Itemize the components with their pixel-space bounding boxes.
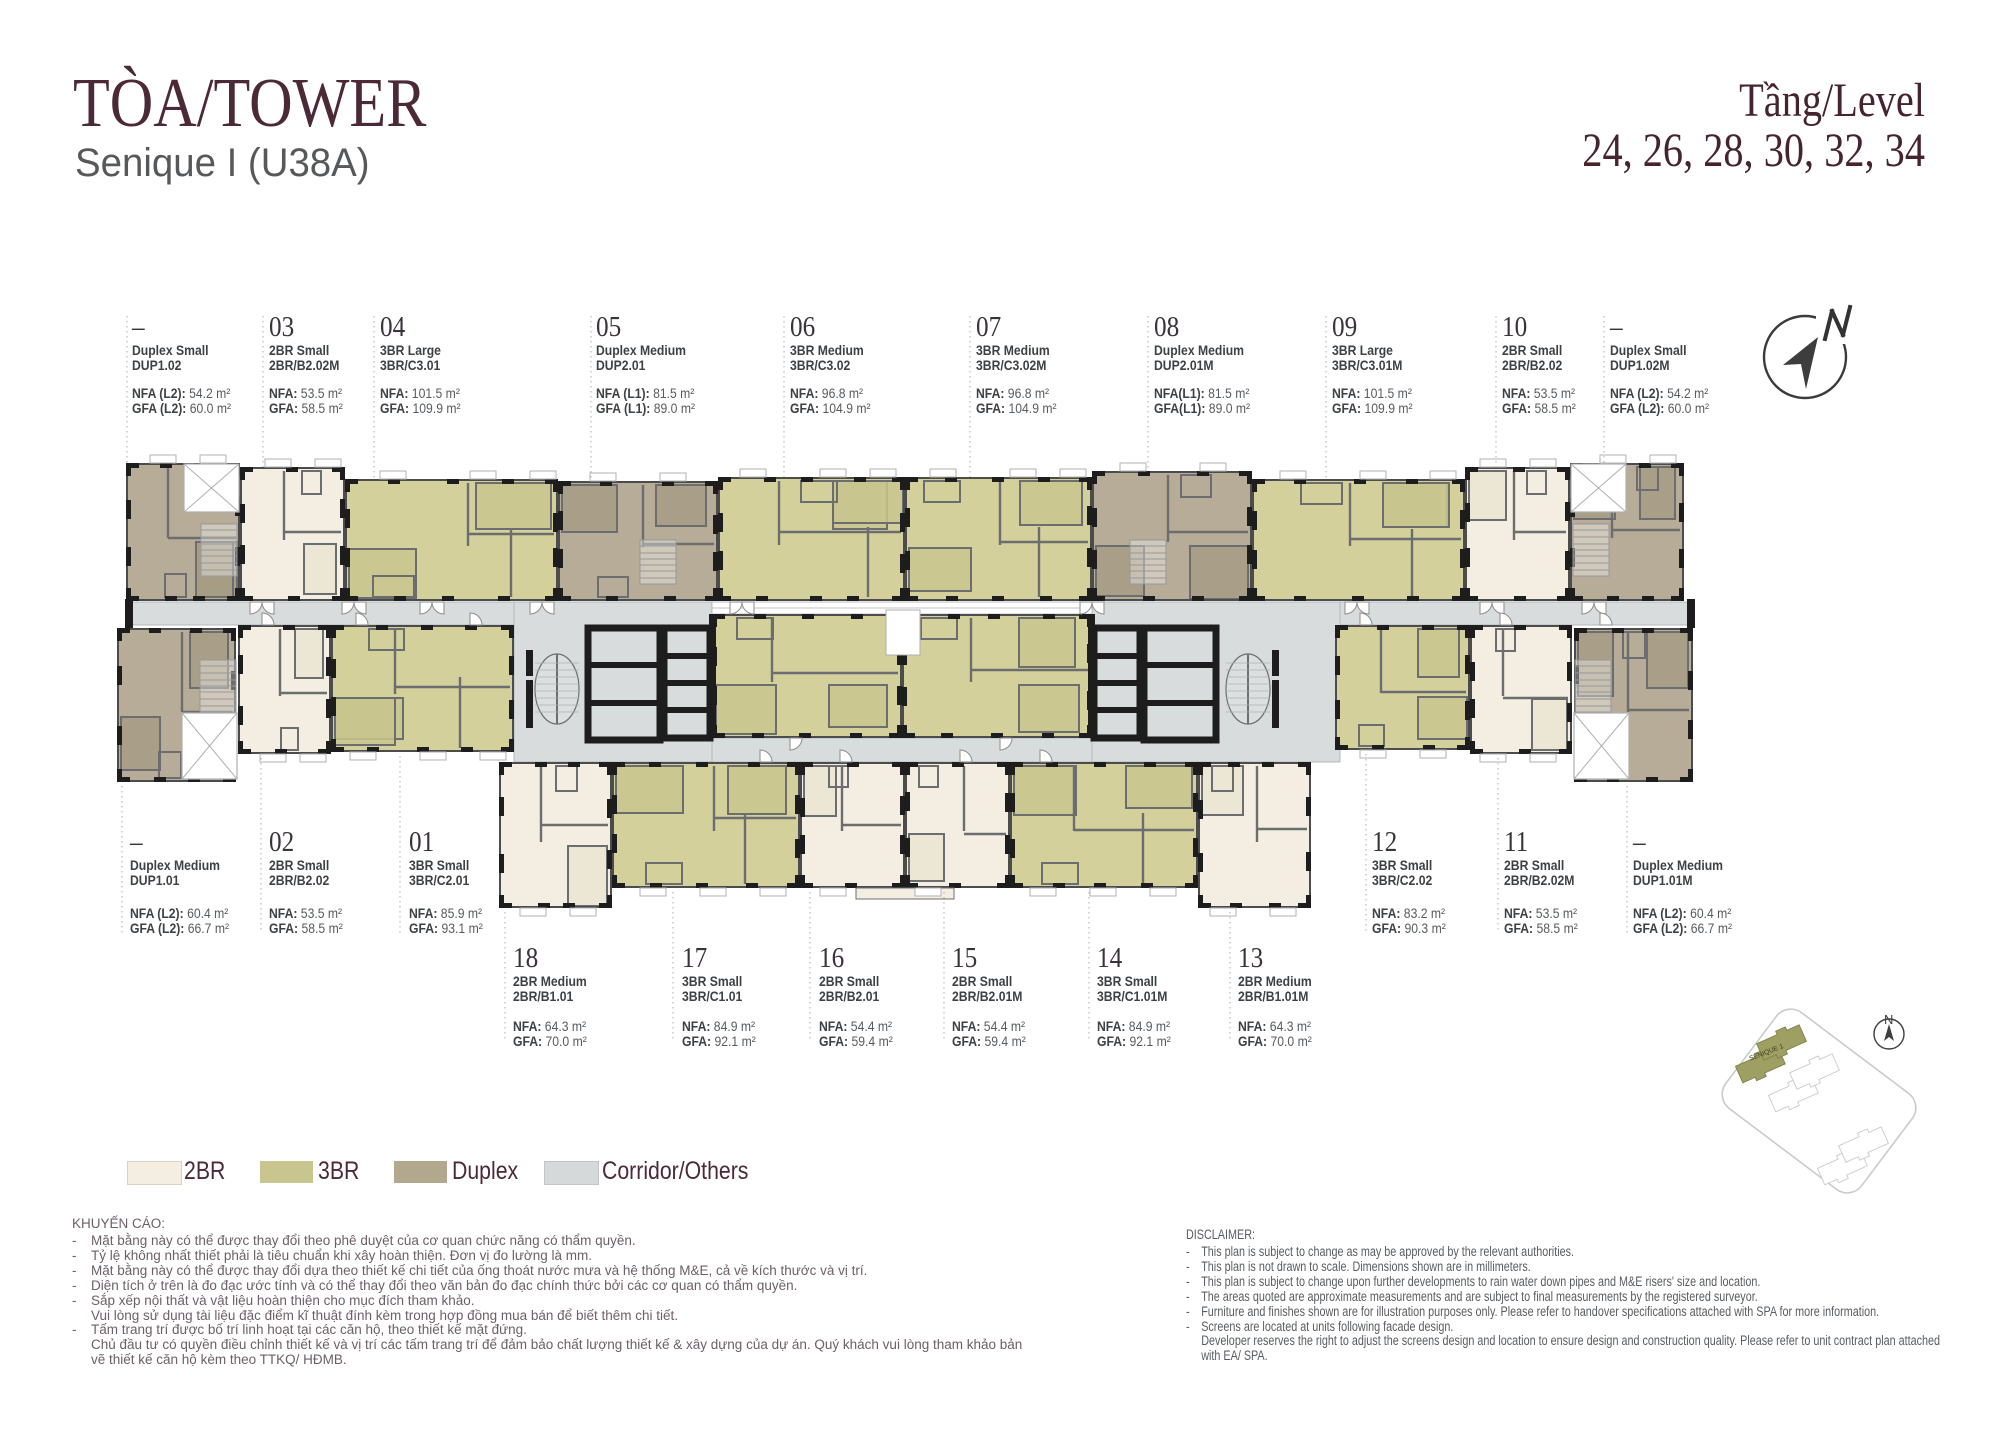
svg-text:N: N [1884, 1012, 1893, 1027]
